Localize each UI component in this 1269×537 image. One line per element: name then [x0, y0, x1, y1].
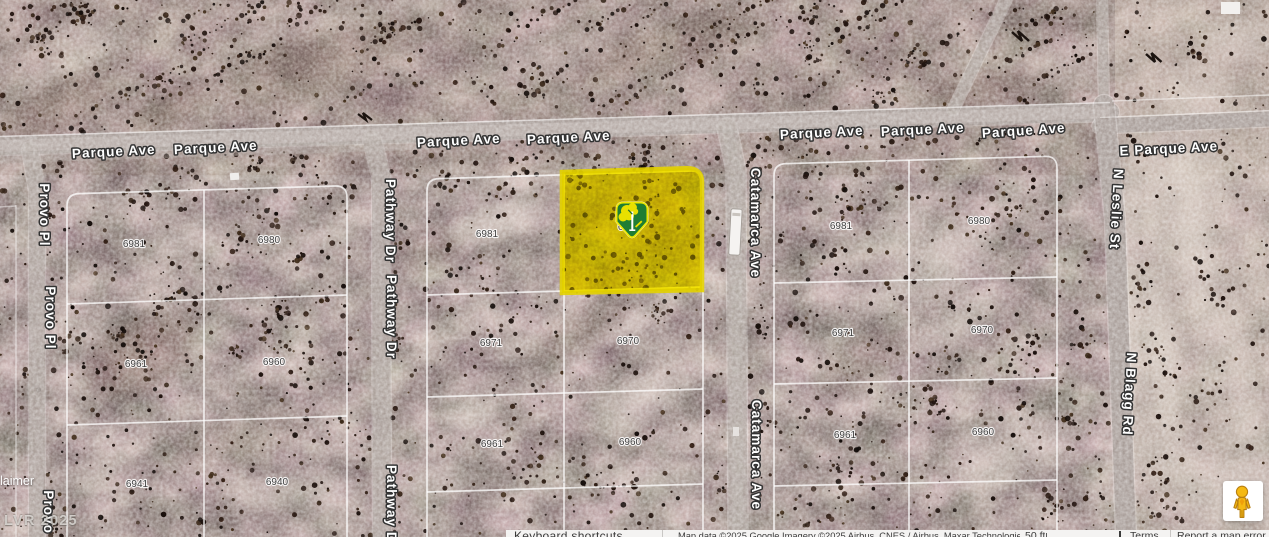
- svg-text:Provo Pl: Provo Pl: [43, 286, 58, 349]
- svg-text:Pathway Dr: Pathway Dr: [383, 179, 398, 263]
- svg-text:Catamarca Ave: Catamarca Ave: [748, 168, 763, 278]
- svg-text:6971: 6971: [832, 328, 855, 339]
- svg-text:6941: 6941: [126, 479, 149, 490]
- svg-text:6961: 6961: [481, 439, 504, 450]
- svg-text:6981: 6981: [123, 239, 146, 250]
- svg-text:6960: 6960: [263, 357, 286, 368]
- svg-text:6980: 6980: [968, 216, 991, 227]
- svg-text:6971: 6971: [480, 338, 503, 349]
- svg-text:6960: 6960: [972, 427, 995, 438]
- svg-text:Catamarca Ave: Catamarca Ave: [749, 400, 764, 510]
- svg-text:6961: 6961: [834, 430, 857, 441]
- svg-text:Pathway Dr: Pathway Dr: [384, 465, 399, 537]
- svg-text:6960: 6960: [619, 437, 642, 448]
- svg-text:6940: 6940: [266, 477, 289, 488]
- svg-text:Pathway Dr: Pathway Dr: [384, 275, 399, 359]
- svg-text:6980: 6980: [258, 235, 281, 246]
- svg-text:6970: 6970: [617, 336, 640, 347]
- svg-text:Provo Pl: Provo Pl: [37, 183, 52, 246]
- svg-text:6981: 6981: [830, 221, 853, 232]
- svg-text:6970: 6970: [971, 325, 994, 336]
- svg-text:6961: 6961: [125, 359, 148, 370]
- svg-text:6981: 6981: [476, 229, 499, 240]
